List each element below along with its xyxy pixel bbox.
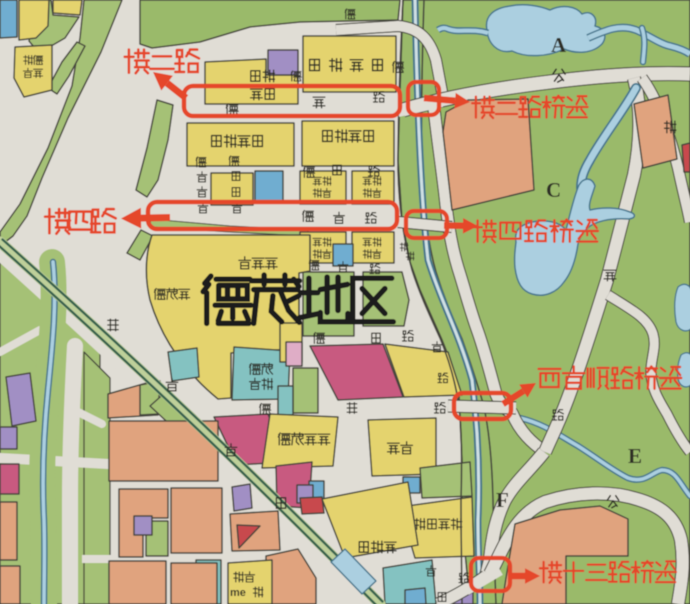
svg-text:C: C [546,178,561,202]
svg-text:F: F [496,488,509,512]
svg-text:me: me [230,587,246,599]
svg-text:A: A [551,33,567,57]
svg-text:E: E [628,444,642,468]
